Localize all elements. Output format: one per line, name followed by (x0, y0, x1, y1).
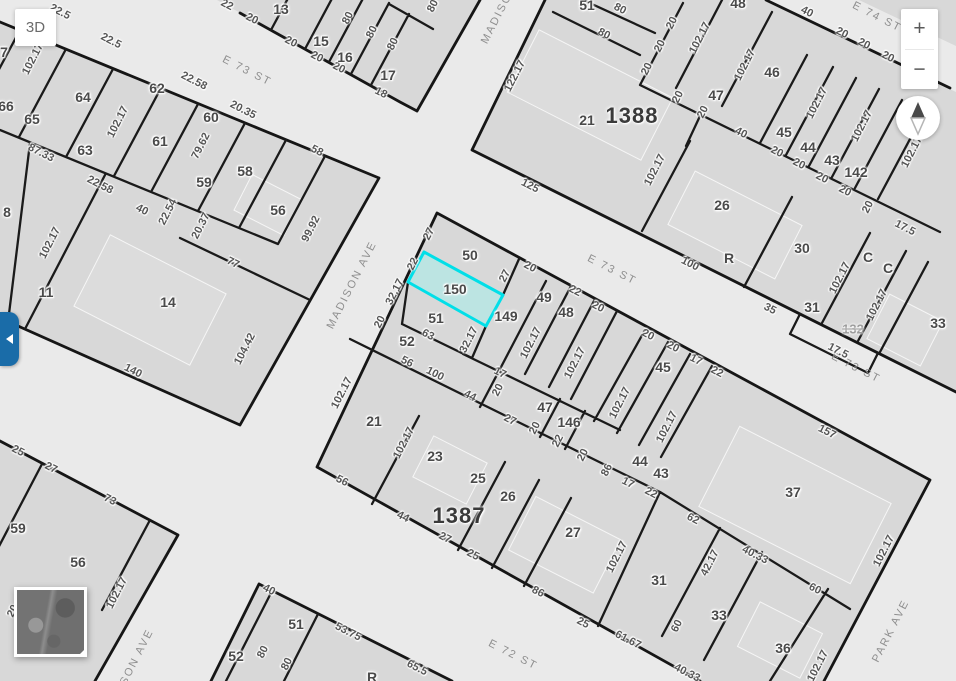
minimap-fold (77, 647, 87, 657)
zoom-in-button[interactable]: + (901, 9, 938, 49)
view-3d-button[interactable]: 3D (15, 9, 56, 46)
minimap[interactable] (14, 587, 87, 657)
compass-button[interactable] (896, 96, 940, 140)
chevron-left-icon (6, 334, 13, 344)
compass-needle-icon (896, 96, 940, 140)
map-canvas[interactable] (0, 0, 956, 681)
zoom-out-button[interactable]: − (901, 50, 938, 90)
map-viewport: E 73 STE 74 STE 73 STE 73 STE 72 STMADIS… (0, 0, 956, 681)
sidebar-toggle-button[interactable] (0, 312, 19, 366)
zoom-controls: + − (901, 9, 938, 89)
